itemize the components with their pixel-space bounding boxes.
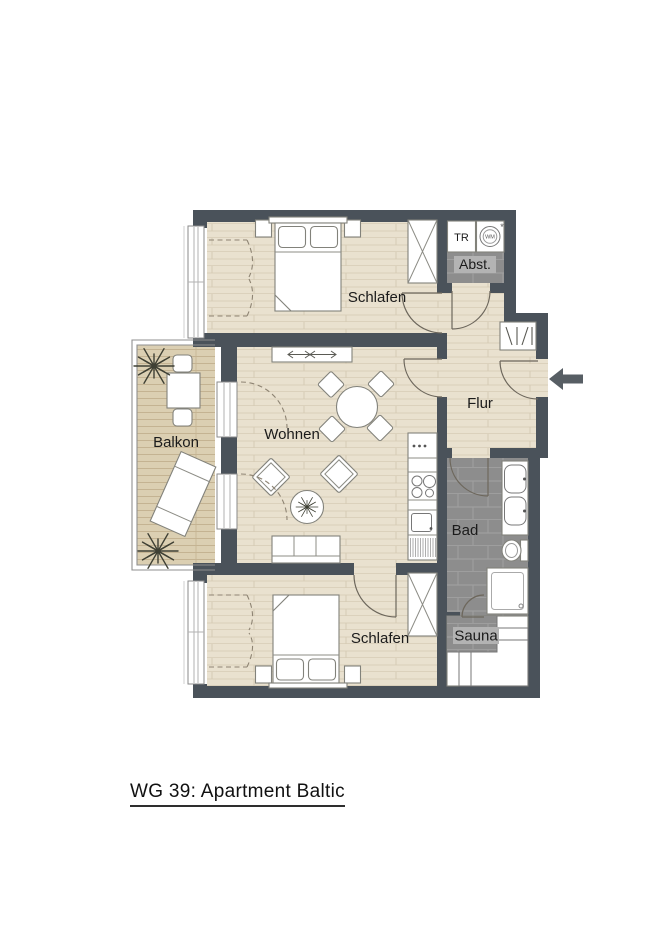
doorway-floor <box>536 359 548 397</box>
sofa <box>272 536 340 563</box>
pillow <box>279 227 306 248</box>
doorway-floor <box>437 359 447 397</box>
kitchen-sink <box>412 514 432 532</box>
balcony-door-window-upper <box>217 382 237 437</box>
plan-title: WG 39: Apartment Baltic <box>130 781 345 807</box>
bed-headboard <box>269 683 347 688</box>
floor-plan-page: TR WM * Abst. <box>0 0 670 950</box>
bed-headboard <box>269 217 347 223</box>
washer-label: WM <box>485 235 495 241</box>
room-label-wohnen: Wohnen <box>264 426 320 443</box>
sauna: Sauna <box>447 616 528 686</box>
washer-note: * <box>500 222 504 232</box>
sink-basin <box>505 497 527 525</box>
floor-flur-arm <box>447 293 504 313</box>
balcony-chair <box>173 355 192 372</box>
dining-table <box>337 387 378 428</box>
pillow <box>277 659 304 680</box>
doorway-floor <box>437 293 447 333</box>
room-label-flur: Flur <box>467 395 493 412</box>
nightstand <box>345 666 361 683</box>
faucet-dot <box>523 478 526 481</box>
faucet-dot <box>523 510 526 513</box>
doorway-floor <box>452 283 490 293</box>
control-dot <box>418 445 421 448</box>
room-label-schlafen-bottom: Schlafen <box>351 630 409 647</box>
nightstand <box>256 666 272 683</box>
control-dot <box>413 445 416 448</box>
balcony-table <box>167 373 200 408</box>
room-label-balkon: Balkon <box>153 434 199 451</box>
doorway-floor <box>354 563 396 575</box>
balcony-chair <box>173 409 192 426</box>
room-label-abstellraum: Abst. <box>459 256 491 272</box>
sink-basin <box>505 465 527 493</box>
shower <box>487 568 528 614</box>
doorway-floor <box>452 448 490 458</box>
entry-arrow-icon <box>549 368 583 390</box>
control-dot <box>424 445 427 448</box>
kitchenette <box>408 433 437 560</box>
pillow <box>311 227 338 248</box>
room-label-schlafen-top: Schlafen <box>348 289 406 306</box>
faucet-dot <box>430 527 433 530</box>
balcony-door-window-lower <box>217 474 237 529</box>
toilet-tank <box>521 540 529 561</box>
dryer-label: TR <box>454 232 469 244</box>
pillow <box>309 659 336 680</box>
room-label-sauna: Sauna <box>454 628 498 645</box>
floor-plan: TR WM * Abst. <box>0 0 670 950</box>
room-label-bad: Bad <box>452 522 479 539</box>
storage-room: TR WM * Abst. <box>448 221 505 273</box>
plan-title-text: WG 39: Apartment Baltic <box>130 781 345 807</box>
coat-rack-icon <box>500 322 536 350</box>
